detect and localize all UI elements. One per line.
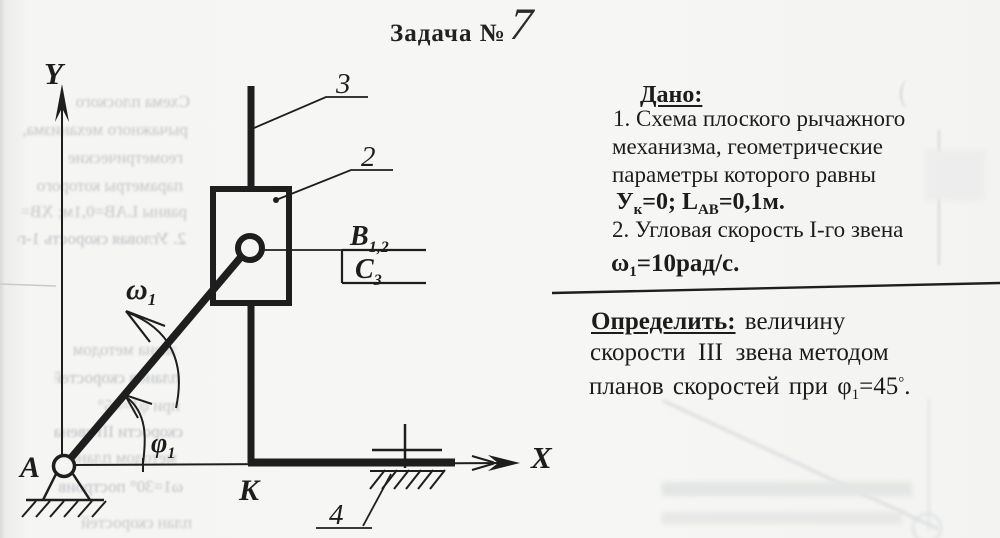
- joint-c-label: C3: [355, 254, 382, 289]
- phi1-angle-arrow: [125, 395, 152, 472]
- problem-number: 7: [508, 0, 534, 50]
- bleed-rule: [0, 284, 56, 286]
- given-line: 1. Схема плоского рычажного: [613, 106, 905, 132]
- leader-link3: [254, 97, 368, 128]
- point-a-label: A: [18, 451, 40, 484]
- x-axis-label: X: [530, 440, 553, 475]
- leader-link2: [276, 170, 393, 200]
- given-parameters: Ук=0; LАВ=0,1м.: [616, 189, 785, 216]
- given-heading: Дано:: [640, 82, 702, 109]
- ground-hatching-right: [370, 470, 445, 489]
- link3-number: 3: [335, 68, 351, 100]
- omega1-label: ω1: [126, 273, 156, 309]
- scanned-problem-page: Схема плоского рычажного механизма, геом…: [0, 0, 1000, 538]
- problem-title: Задача №: [390, 20, 506, 48]
- joint-b-label: B1,2: [349, 221, 389, 256]
- y-axis-label: Y: [44, 56, 66, 91]
- find-phi-line: планов скоростей при φ1=45°.: [589, 373, 911, 401]
- pin-joint-b: [238, 236, 262, 260]
- link2-number: 2: [361, 141, 376, 173]
- pivot-a-pin: [54, 456, 75, 477]
- leader-link2-dot: [273, 197, 279, 203]
- find-heading-line: Определить: величину: [591, 308, 845, 336]
- leader-link4: [316, 474, 391, 528]
- given-line: 2. Угловая скорость I-го звена: [612, 217, 903, 243]
- given-line: механизма, геометрические: [612, 134, 883, 160]
- given-omega-value: ω1=10рад/с.: [611, 250, 739, 278]
- phi1-label: φ1: [151, 428, 175, 462]
- link4-number: 4: [329, 499, 344, 531]
- given-line: параметры которого равны: [612, 162, 876, 188]
- horizontal-rule: [552, 283, 1000, 293]
- mechanism-diagram: Y X A K 3 2 4 B1,2 C3 ω1 φ1: [0, 0, 1000, 538]
- point-k-label: K: [238, 474, 261, 507]
- find-line: скорости III звена методом: [590, 339, 889, 367]
